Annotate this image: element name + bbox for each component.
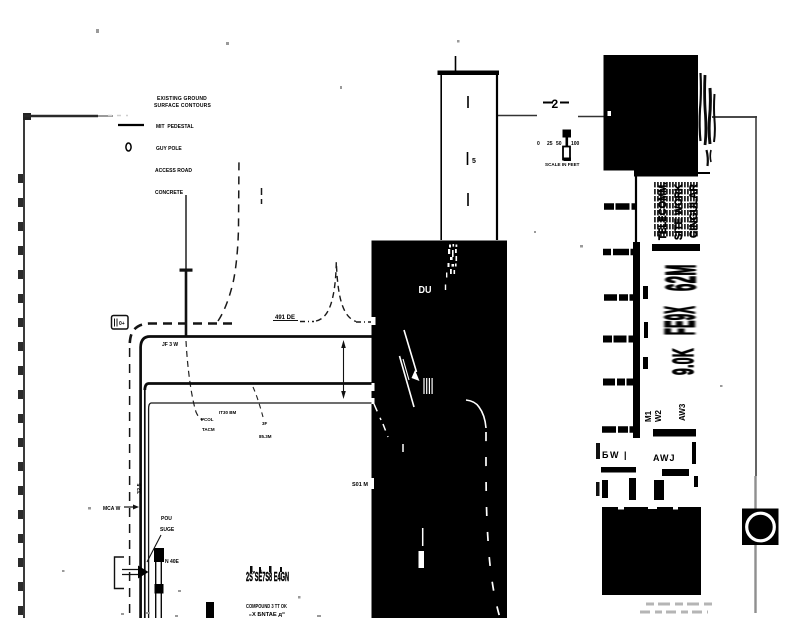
svg-text:PCOL: PCOL [201,417,214,422]
svg-text:SURFACE CONTOURS: SURFACE CONTOURS [154,103,211,109]
svg-text:AWJ: AWJ [653,453,676,463]
svg-text:9.0K: 9.0K [667,348,700,375]
svg-text:W2: W2 [654,409,663,422]
svg-text:0: 0 [537,141,540,147]
svg-text:SITE WORK: SITE WORK [673,184,685,240]
svg-text:IT30 BM: IT30 BM [219,410,237,415]
svg-text:5: 5 [472,158,476,165]
svg-text:SCALE IN FEET: SCALE IN FEET [545,162,580,167]
svg-text:БW |: БW | [602,450,628,460]
svg-text:50: 50 [556,141,562,147]
svg-text:CONCRETE: CONCRETE [155,190,184,196]
svg-text:100: 100 [571,141,580,147]
svg-text:AW3: AW3 [678,403,687,421]
svg-text:POU: POU [161,516,172,522]
svg-text:M1: M1 [644,410,653,422]
svg-text:85.3M: 85.3M [259,434,272,439]
svg-text:2: 2 [552,97,559,111]
svg-text:FE9X: FE9X [657,306,704,335]
svg-text:ACCESS ROAD: ACCESS ROAD [155,168,192,174]
svg-text:TACM: TACM [202,427,215,432]
svg-text:S01 M: S01 M [352,482,368,488]
svg-text:32.5: 32.5 [137,483,143,494]
svg-text:62M: 62M [657,264,704,291]
svg-text:COMPOUND 3 TT OK: COMPOUND 3 TT OK [246,604,287,610]
svg-text:CINGULAR: CINGULAR [688,184,700,238]
svg-text:MIT PEDESTAL: MIT PEDESTAL [156,124,194,130]
svg-text:MCA W: MCA W [103,506,121,512]
svg-text:TELECOMM.: TELECOMM. [657,182,669,240]
svg-text:JF 3 W: JF 3 W [162,342,178,348]
svg-text:0+: 0+ [119,321,125,327]
svg-text:EXISTING GROUND: EXISTING GROUND [157,96,207,102]
svg-text:X БNTAЕ д: X БNTAЕ д [252,612,283,618]
svg-text:25: 25 [547,141,553,147]
svg-text:GUY POLE: GUY POLE [156,146,182,152]
svg-text:DU: DU [419,285,432,296]
svg-text:SUGE: SUGE [160,527,175,533]
svg-text:3F: 3F [262,421,268,426]
svg-text:N 40E: N 40E [165,559,180,565]
